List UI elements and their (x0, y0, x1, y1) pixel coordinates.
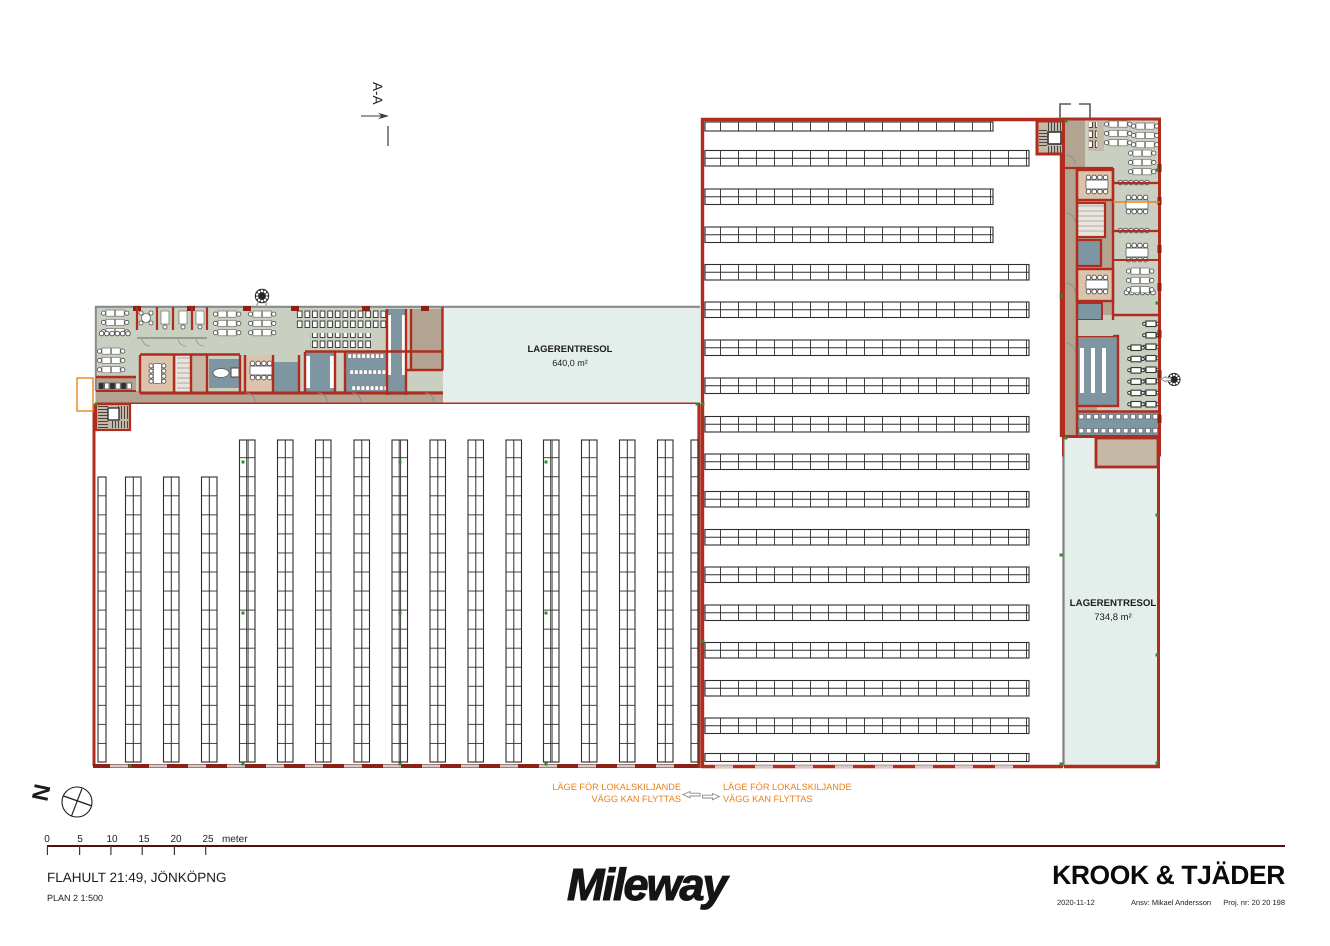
svg-text:LAGERENTRESOL: LAGERENTRESOL (528, 344, 613, 355)
svg-text:10: 10 (106, 834, 118, 845)
svg-text:734,8 m²: 734,8 m² (1094, 612, 1132, 623)
svg-text:25: 25 (202, 834, 214, 845)
svg-text:VÄGG KAN FLYTTAS: VÄGG KAN FLYTTAS (591, 794, 681, 804)
svg-text:VÄGG KAN FLYTTAS: VÄGG KAN FLYTTAS (723, 794, 813, 804)
svg-text:15: 15 (138, 834, 150, 845)
svg-text:2020-11-12: 2020-11-12 (1057, 898, 1095, 907)
svg-text:FLAHULT 21:49, JÖNKÖPNG: FLAHULT 21:49, JÖNKÖPNG (47, 870, 227, 885)
svg-text:Mileway: Mileway (567, 859, 730, 910)
svg-text:LÄGE FÖR LOKALSKILJANDE: LÄGE FÖR LOKALSKILJANDE (552, 782, 681, 792)
svg-text:5: 5 (77, 834, 83, 845)
svg-text:0: 0 (44, 834, 50, 845)
svg-text:LAGERENTRESOL: LAGERENTRESOL (1070, 598, 1157, 609)
svg-text:20: 20 (170, 834, 182, 845)
svg-text:640,0 m²: 640,0 m² (552, 358, 588, 368)
svg-text:A-A: A-A (370, 82, 385, 105)
svg-text:Proj. nr: 20 20 198: Proj. nr: 20 20 198 (1223, 898, 1285, 907)
svg-text:meter: meter (222, 834, 248, 845)
svg-text:LÄGE FÖR LOKALSKILJANDE: LÄGE FÖR LOKALSKILJANDE (723, 782, 852, 792)
svg-text:KROOK & TJÄDER: KROOK & TJÄDER (1052, 860, 1285, 890)
svg-text:Ansv: Mikael Andersson: Ansv: Mikael Andersson (1131, 898, 1211, 907)
svg-text:PLAN 2 1:500: PLAN 2 1:500 (47, 893, 103, 903)
